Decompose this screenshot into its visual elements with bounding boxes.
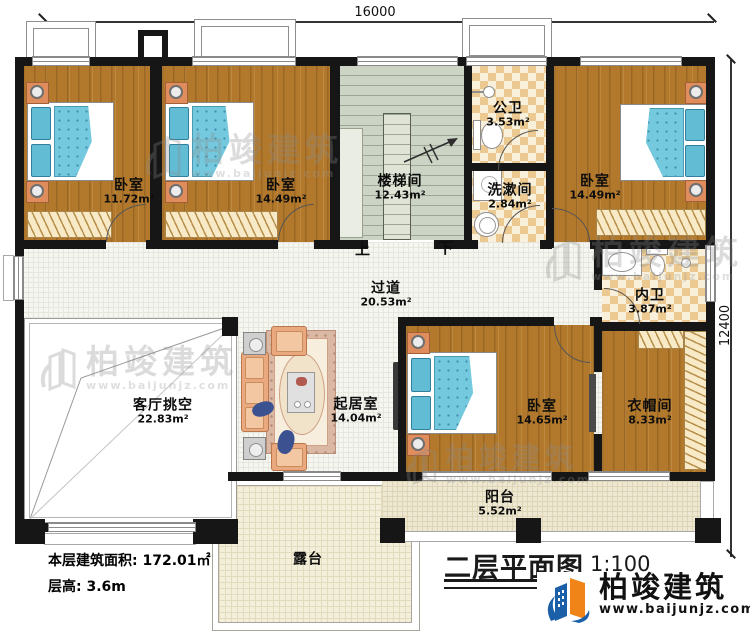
toilet	[646, 248, 668, 255]
nightstand	[165, 82, 188, 104]
living-void-area	[24, 318, 237, 523]
wall-segment	[540, 240, 552, 249]
stair-up-label: 上	[355, 241, 371, 258]
room-label-bedroom-2: 卧室14.49m²	[255, 178, 306, 205]
column-pier	[15, 519, 45, 544]
room-label-cloakroom: 衣帽间8.33m²	[628, 399, 673, 426]
stair-down-label: 下	[438, 240, 454, 257]
nightstand	[165, 181, 188, 203]
floor-height-stat: 层高: 3.6m	[48, 575, 211, 601]
wall-segment	[590, 317, 602, 326]
closet-shelving	[684, 331, 707, 470]
bay-window	[26, 21, 96, 60]
window	[357, 56, 458, 66]
window	[580, 56, 682, 66]
bed	[620, 104, 709, 181]
window-sill	[44, 533, 196, 545]
nightstand	[407, 434, 430, 456]
balcony-railing	[382, 531, 708, 542]
wardrobe	[27, 211, 112, 238]
window	[13, 256, 24, 300]
nightstand	[26, 181, 49, 203]
room-label-terrace: 露台	[293, 552, 323, 567]
brand-logo-icon	[541, 572, 595, 624]
window	[283, 471, 341, 481]
window	[192, 56, 296, 66]
column-pier	[222, 317, 238, 336]
column-pier	[380, 518, 405, 543]
wall-segment	[146, 240, 278, 249]
nightstand	[685, 82, 708, 104]
window	[466, 56, 547, 66]
top-dimension-label: 16000	[354, 5, 395, 20]
wall-segment	[594, 248, 602, 290]
balcony-floor	[382, 481, 708, 531]
wall-segment	[341, 472, 398, 481]
room-label-washroom: 洗漱间2.84m²	[488, 183, 533, 210]
floor-plan: 16000 12400	[0, 0, 750, 639]
room-label-balcony: 阳台5.52m²	[478, 490, 521, 517]
wall-segment	[594, 331, 602, 372]
toilet	[650, 255, 665, 276]
nightstand	[26, 82, 49, 104]
nightstand	[685, 180, 708, 202]
column-pier	[695, 518, 721, 543]
room-label-stairwell: 楼梯间12.43m²	[374, 174, 425, 201]
lamp-cord	[472, 91, 483, 93]
window	[48, 522, 196, 532]
bay-window	[194, 19, 296, 60]
wall-segment	[398, 317, 554, 326]
wall-segment	[15, 240, 106, 249]
room-label-public-bathroom: 公卫3.53m²	[486, 101, 529, 128]
sliding-door	[589, 374, 596, 432]
nightstand	[407, 332, 430, 354]
wash-basin	[474, 212, 499, 237]
bay-window	[462, 18, 552, 59]
toilet	[473, 120, 481, 150]
brand-name: 柏竣建筑	[599, 572, 750, 602]
room-label-bedroom-4: 卧室14.65m²	[516, 399, 567, 426]
room-label-corridor: 过道20.53m²	[360, 281, 411, 308]
wall-segment	[150, 57, 162, 248]
wall-segment	[594, 434, 602, 472]
floor-area-stat: 本层建筑面积: 172.01㎡	[48, 549, 211, 575]
brand-logo: 柏竣建筑 www.baijunjz.com	[537, 572, 750, 624]
wash-basin	[608, 252, 636, 272]
room-label-sitting-room: 起居室14.04m²	[330, 397, 381, 424]
window	[32, 56, 90, 66]
stair-direction-arrow	[338, 65, 464, 240]
bed	[165, 102, 254, 181]
closet-shelving	[638, 328, 684, 349]
room-label-inner-bathroom: 内卫3.87m²	[628, 288, 671, 315]
column-pier	[193, 519, 238, 544]
wall-segment	[398, 317, 406, 480]
top-dimension-line	[42, 21, 714, 23]
wall-lamp	[483, 86, 495, 98]
armchair	[271, 326, 307, 356]
wardrobe	[165, 211, 278, 238]
bed	[407, 352, 497, 434]
wall-segment	[590, 240, 715, 249]
floor-stats: 本层建筑面积: 172.01㎡ 层高: 3.6m	[48, 549, 211, 601]
side-table	[243, 437, 266, 460]
wall-segment	[670, 472, 715, 481]
wall-lamp	[681, 258, 691, 268]
side-table	[243, 332, 266, 355]
column-pier	[516, 518, 541, 543]
sofa	[241, 352, 269, 432]
right-dimension-label: 12400	[718, 305, 733, 346]
coffee-table	[287, 372, 315, 413]
room-label-living-void: 客厅挑空22.83m²	[133, 398, 193, 425]
balcony-sliding-window	[422, 471, 552, 481]
room-label-bedroom-3: 卧室14.49m²	[569, 174, 620, 201]
wall-segment	[398, 472, 422, 481]
window	[588, 471, 670, 481]
brand-website: www.baijunjz.com	[599, 602, 750, 617]
room-label-bedroom-1: 卧室11.72m²	[103, 178, 154, 205]
wall-segment	[464, 57, 472, 248]
wall-segment	[552, 472, 588, 481]
wall-segment	[330, 57, 340, 248]
wardrobe	[596, 209, 706, 236]
bed	[27, 102, 114, 181]
window	[705, 245, 716, 302]
wall-segment	[228, 472, 283, 481]
